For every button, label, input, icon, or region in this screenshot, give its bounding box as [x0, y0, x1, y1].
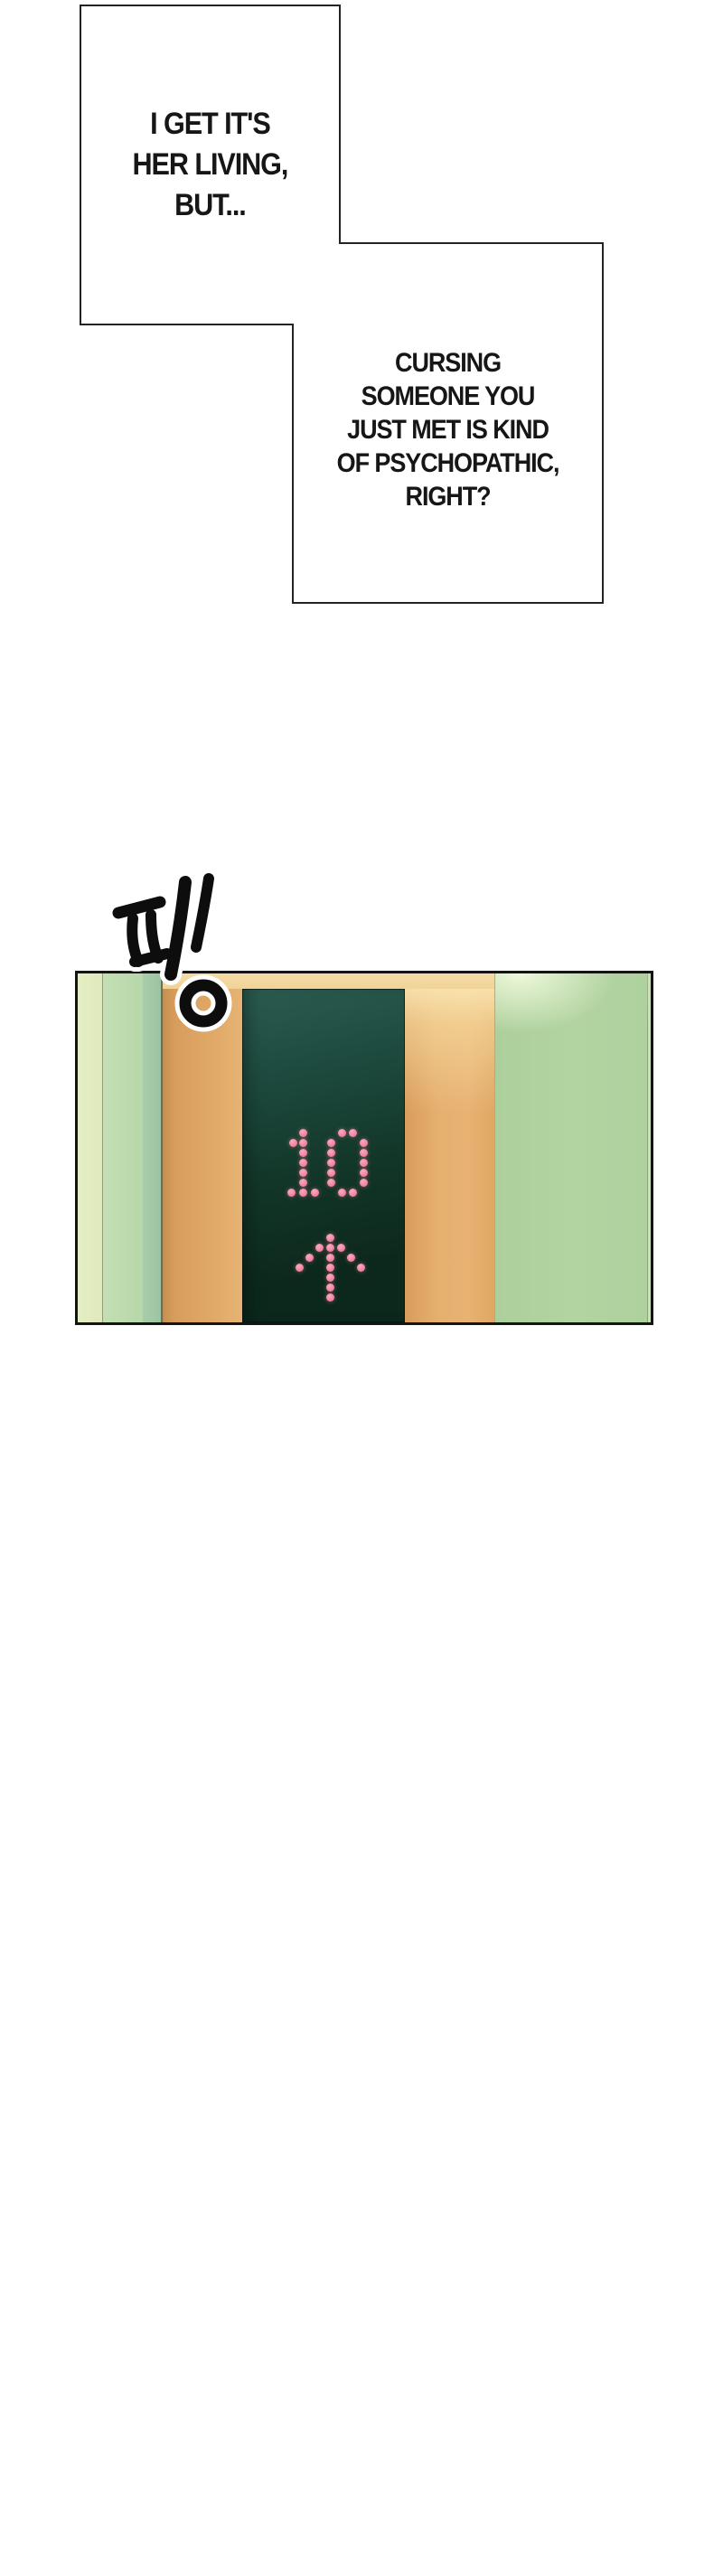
bubble-overlap-patch	[294, 244, 341, 325]
sfx-ding	[104, 868, 244, 1044]
bubble-2-text: CURSINGSOMEONE YOUJUST MET IS KINDOF PSY…	[337, 346, 559, 513]
bubble-overlap-patch	[292, 242, 339, 244]
bubble-1-text: I GET IT'SHER LIVING,BUT...	[133, 104, 288, 226]
comic-page: I GET IT'SHER LIVING,BUT... CURSINGSOMEO…	[0, 0, 723, 2576]
bubble-overlap-patch	[292, 244, 294, 324]
